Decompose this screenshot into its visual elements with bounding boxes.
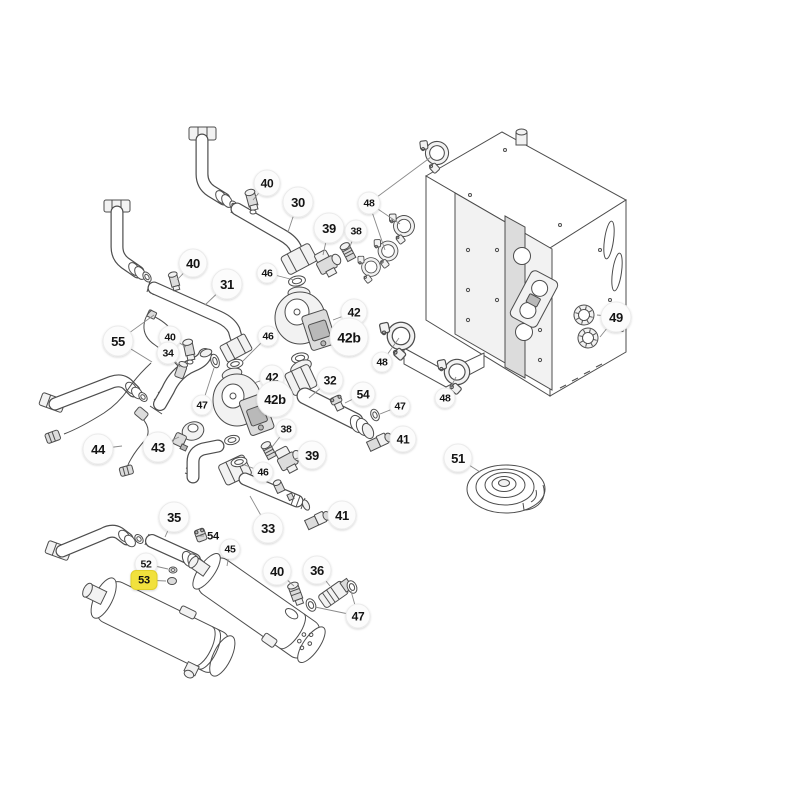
callout-33[interactable]: 33 <box>253 513 283 543</box>
callout-46-2[interactable]: 46 <box>258 326 278 346</box>
front-port-upper <box>514 248 531 265</box>
plug-53 <box>168 578 177 585</box>
callout-label-39-2: 39 <box>305 448 319 463</box>
exploded-parts-diagram: 4030393848464242b3140554034464242b325447… <box>0 0 800 800</box>
callout-label-35: 35 <box>167 510 181 525</box>
callout-51[interactable]: 51 <box>444 444 472 472</box>
callout-label-46-2: 46 <box>262 331 274 343</box>
callout-41-1[interactable]: 41 <box>390 426 416 452</box>
callout-46-1[interactable]: 46 <box>257 263 277 283</box>
callout-54-1[interactable]: 54 <box>351 382 375 406</box>
callout-39-1[interactable]: 39 <box>314 213 344 243</box>
parts-diagram-page: 4030393848464242b3140554034464242b325447… <box>0 0 800 800</box>
callout-46-3[interactable]: 46 <box>253 462 273 482</box>
callout-label-46-3: 46 <box>257 467 269 479</box>
callout-label-53: 53 <box>138 575 150 587</box>
callout-label-42b-2: 42b <box>264 392 286 407</box>
callout-34[interactable]: 34 <box>157 342 179 364</box>
callout-32[interactable]: 32 <box>317 367 343 393</box>
top-stub <box>516 129 527 145</box>
callout-label-49: 49 <box>609 310 623 325</box>
callout-label-43: 43 <box>151 440 165 455</box>
callout-label-52: 52 <box>140 559 152 571</box>
callout-40-1[interactable]: 40 <box>254 170 280 196</box>
gasket-52 <box>169 567 177 573</box>
callout-label-47-3: 47 <box>352 610 365 624</box>
callout-47-1[interactable]: 47 <box>390 396 410 416</box>
callout-31[interactable]: 31 <box>212 269 242 299</box>
callout-48-2[interactable]: 48 <box>372 352 392 372</box>
callout-45[interactable]: 45 <box>220 539 240 559</box>
callout-label-31: 31 <box>220 277 234 292</box>
callout-42b-1[interactable]: 42b <box>330 318 368 356</box>
callout-36[interactable]: 36 <box>303 556 331 584</box>
gasket-coil-51 <box>467 465 545 513</box>
callout-38-1[interactable]: 38 <box>345 220 367 242</box>
callout-label-48-2: 48 <box>376 357 388 369</box>
callout-39-2[interactable]: 39 <box>298 441 326 469</box>
callout-label-44: 44 <box>91 442 106 457</box>
callout-label-40-1: 40 <box>261 177 274 191</box>
callout-35[interactable]: 35 <box>159 502 189 532</box>
callout-label-54-1: 54 <box>357 388 370 402</box>
callout-label-45: 45 <box>224 544 236 556</box>
callout-label-42-1: 42 <box>348 306 361 320</box>
callout-48-1[interactable]: 48 <box>358 192 380 214</box>
callout-label-47-2: 47 <box>196 400 208 412</box>
callout-label-39-1: 39 <box>322 221 336 236</box>
callout-label-48-1: 48 <box>363 198 375 210</box>
callout-55[interactable]: 55 <box>103 326 133 356</box>
callout-44[interactable]: 44 <box>83 434 113 464</box>
callout-label-40-2: 40 <box>186 256 200 271</box>
callout-40-2[interactable]: 40 <box>179 249 207 277</box>
callout-label-48-3: 48 <box>439 393 451 405</box>
callout-54-2[interactable]: 54 <box>207 531 220 543</box>
callout-48-3[interactable]: 48 <box>435 388 455 408</box>
callout-label-51: 51 <box>451 451 465 466</box>
callout-label-47-1: 47 <box>394 401 406 413</box>
callout-label-36: 36 <box>310 563 324 578</box>
callout-label-41-2: 41 <box>335 508 349 523</box>
callout-label-40-4: 40 <box>270 564 284 579</box>
callout-53[interactable]: 53 <box>131 571 157 590</box>
callout-label-33: 33 <box>261 521 275 536</box>
callout-40-4[interactable]: 40 <box>263 557 291 585</box>
callout-label-34: 34 <box>162 348 174 360</box>
callout-label-32: 32 <box>324 374 337 388</box>
callout-label-54-2: 54 <box>207 531 220 543</box>
callout-label-46-1: 46 <box>261 268 273 280</box>
callout-41-2[interactable]: 41 <box>328 501 356 529</box>
callout-label-41-1: 41 <box>397 433 410 447</box>
callout-49[interactable]: 49 <box>601 302 631 332</box>
callout-30[interactable]: 30 <box>283 187 313 217</box>
callout-47-3[interactable]: 47 <box>346 604 370 628</box>
callout-label-38-1: 38 <box>350 226 362 238</box>
callout-38-2[interactable]: 38 <box>276 419 296 439</box>
callout-label-38-2: 38 <box>280 424 292 436</box>
callout-label-42b-1: 42b <box>337 330 360 346</box>
callout-47-2[interactable]: 47 <box>192 395 212 415</box>
callout-label-55: 55 <box>111 334 125 349</box>
callout-42b-2[interactable]: 42b <box>257 381 293 417</box>
callout-label-30: 30 <box>291 195 305 210</box>
callout-43[interactable]: 43 <box>143 432 173 462</box>
